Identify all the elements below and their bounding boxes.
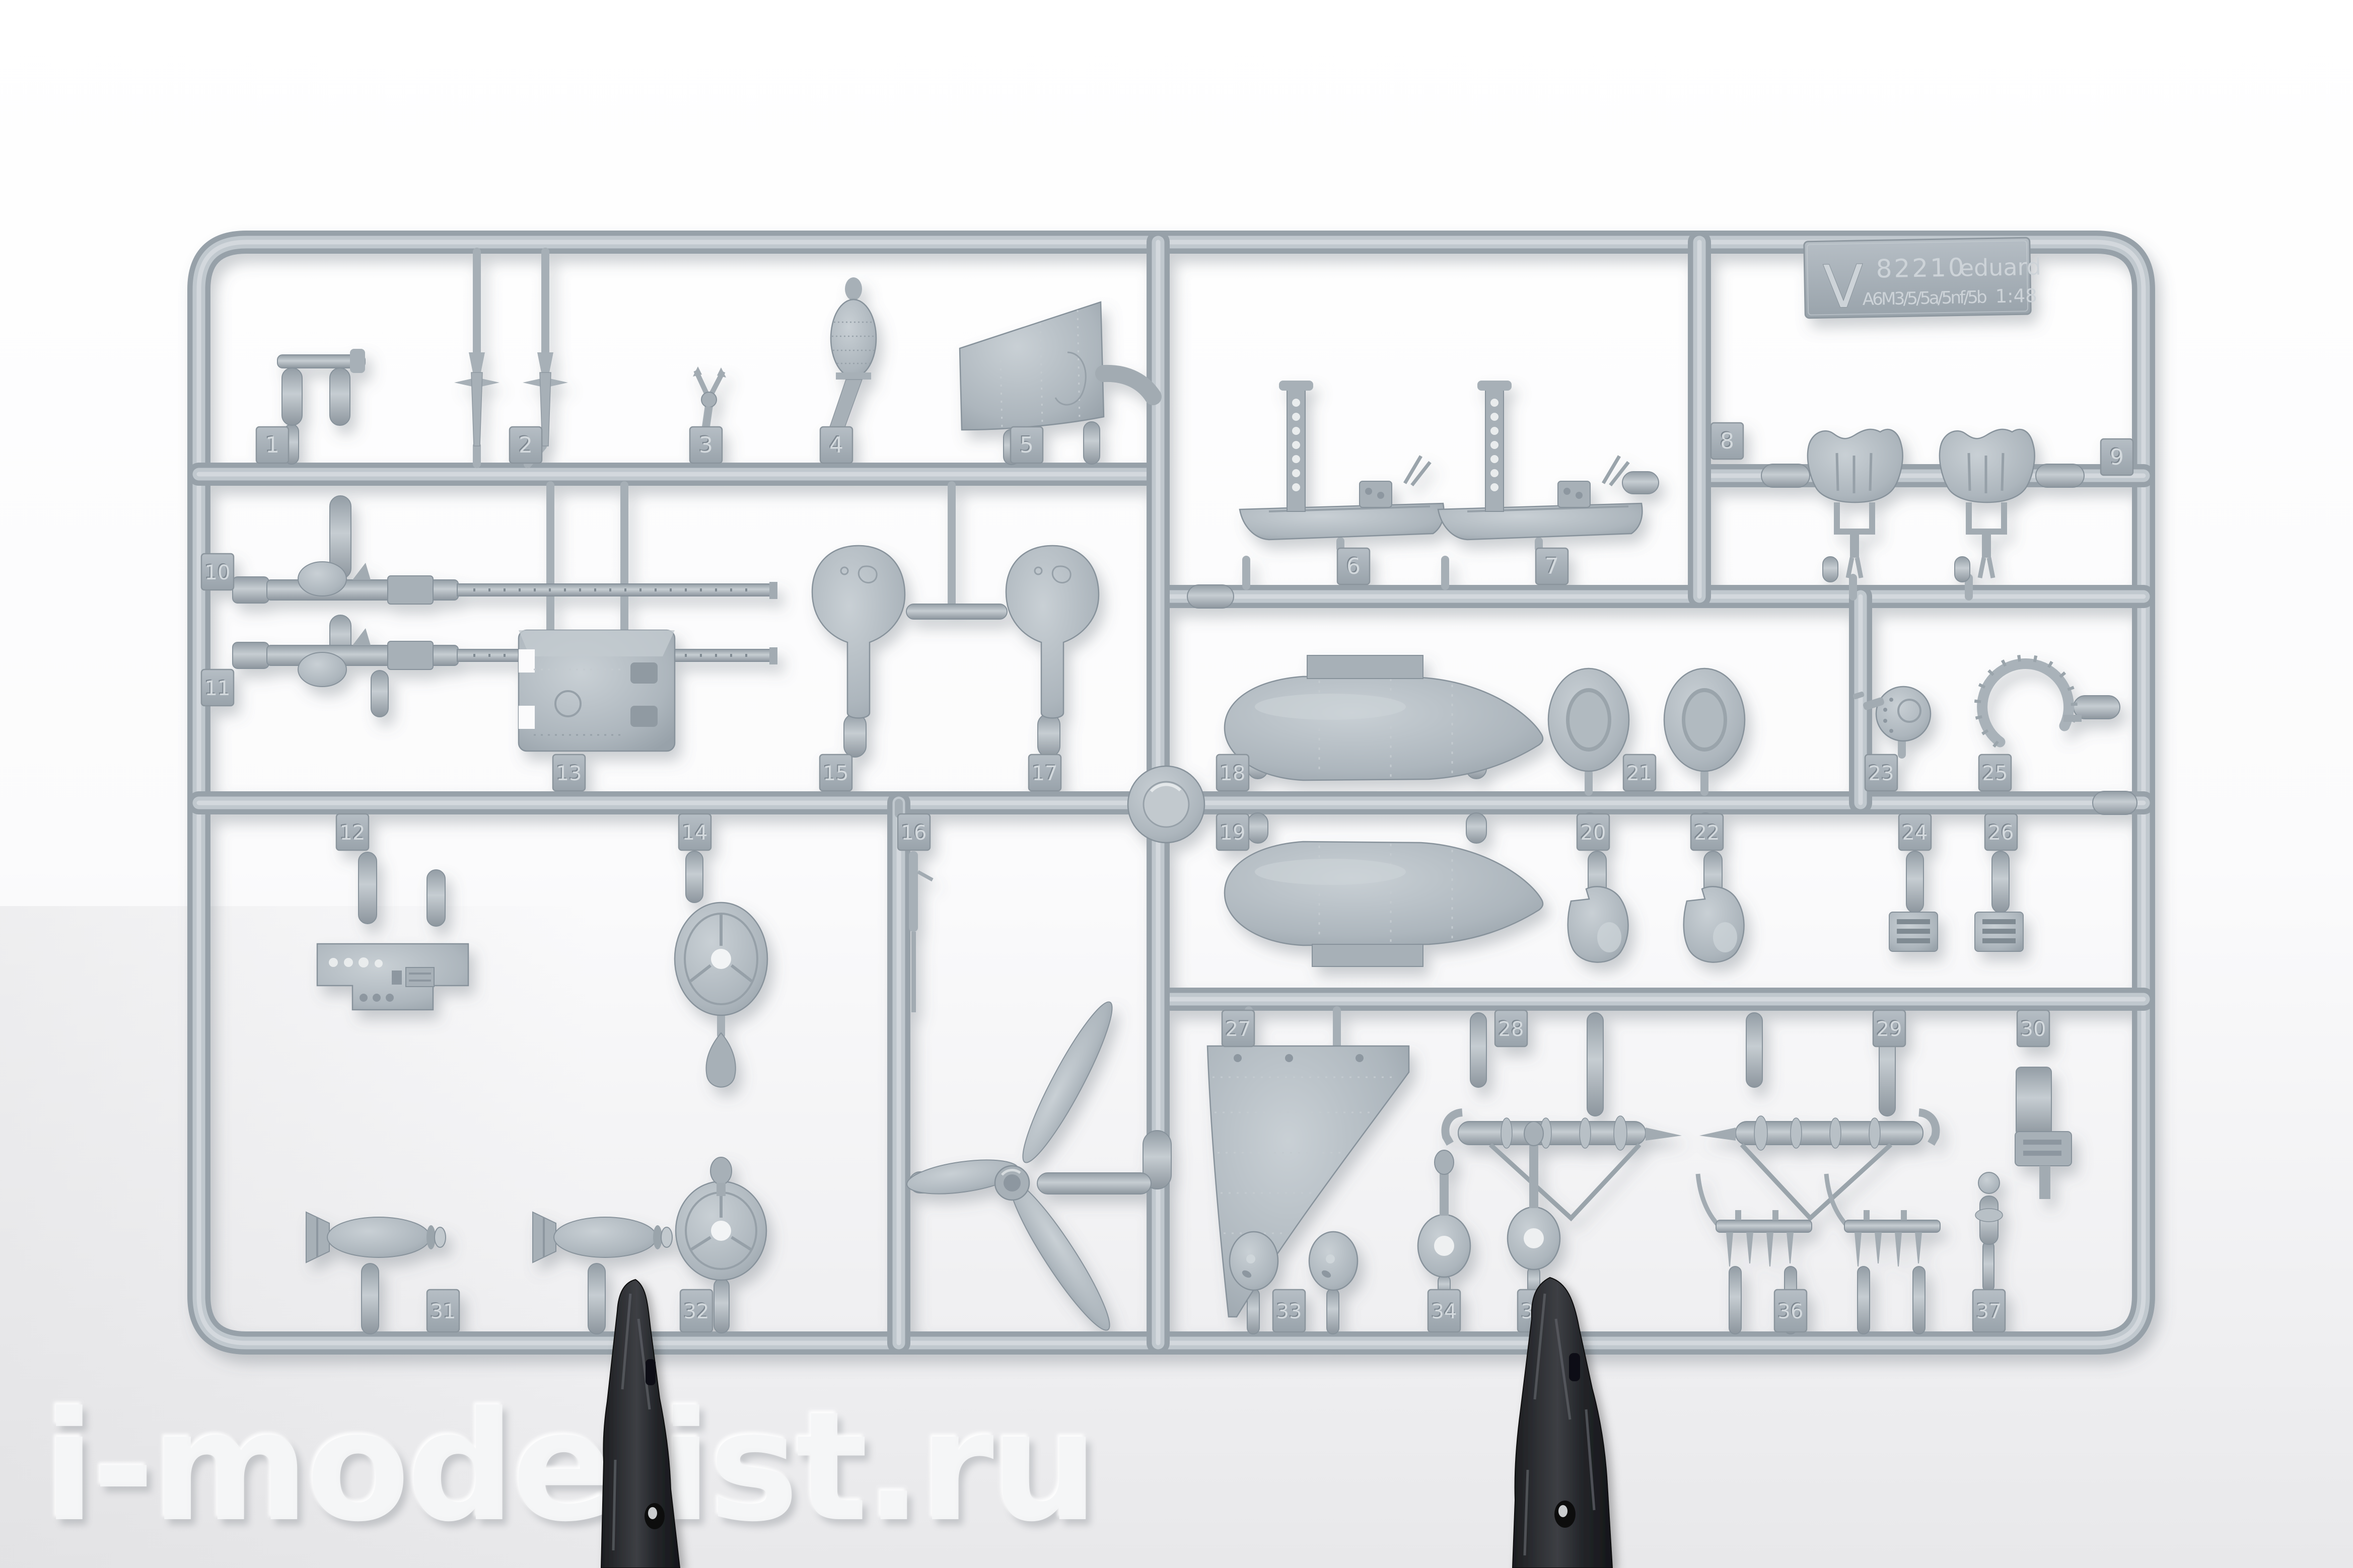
part-24-louver xyxy=(1889,912,1938,951)
label-brand: eduard xyxy=(1959,253,2041,282)
sprue-label-plate: V 82210 eduard A6M3/5/5a/5nf/5b 1:48 xyxy=(1804,238,2042,322)
part-tag-13: 1313 xyxy=(553,755,585,791)
part-32-knob xyxy=(710,1157,732,1184)
gate-stub xyxy=(1038,714,1060,757)
disc-hole xyxy=(711,949,731,969)
sprue-injection-hub xyxy=(1128,766,1204,843)
label-variant: A6M3/5/5a/5nf/5b xyxy=(1862,287,1987,310)
gate-stub xyxy=(359,852,377,924)
gate-stub xyxy=(427,870,445,926)
tag-number: 23 xyxy=(1869,762,1894,785)
tag-number: 17 xyxy=(1032,762,1058,785)
gate-stub xyxy=(1187,585,1234,608)
part-21-cowl-ring-a xyxy=(1548,668,1629,771)
tag-number: 16 xyxy=(901,822,927,845)
tag-number: 1 xyxy=(265,432,279,458)
tag-number: 22 xyxy=(1694,822,1720,845)
gate-stub xyxy=(2093,791,2137,814)
tag-number: 28 xyxy=(1499,1018,1524,1041)
label-sprue-letter: V xyxy=(1822,252,1864,322)
part-tag-22: 2222 xyxy=(1691,814,1723,850)
tag-number: 31 xyxy=(431,1300,456,1323)
disc-hole xyxy=(711,1221,731,1241)
gate-stub xyxy=(686,851,703,903)
paddle-connector-bar xyxy=(906,604,1007,619)
gate-stub xyxy=(362,1263,379,1334)
tag-number: 13 xyxy=(556,762,582,785)
part-tag-29: 2929 xyxy=(1873,1010,1905,1047)
part-tag-24: 2424 xyxy=(1899,814,1931,850)
part-tag-6: 66 xyxy=(1337,548,1370,584)
tag-number: 10 xyxy=(205,561,231,584)
part-tag-5: 55 xyxy=(1011,427,1043,463)
disc-hole xyxy=(1524,1228,1544,1248)
tag-number: 25 xyxy=(1982,762,2008,785)
tag-number: 21 xyxy=(1627,762,1653,785)
gate-stub xyxy=(1622,472,1659,494)
tag-number: 33 xyxy=(1276,1300,1302,1323)
disc-hole xyxy=(1434,1236,1454,1256)
label-kit-number: 82210 xyxy=(1876,253,1966,283)
part-tag-34: 3434 xyxy=(1428,1290,1460,1332)
gate-stub xyxy=(1858,1266,1870,1334)
part-tag-14: 1414 xyxy=(679,814,711,850)
part-tag-28: 2828 xyxy=(1495,1010,1527,1047)
tag-number: 19 xyxy=(1220,822,1246,845)
part-tag-32: 3232 xyxy=(680,1290,712,1332)
gate-stub xyxy=(1327,1289,1339,1334)
gate-stub xyxy=(588,1263,605,1334)
part-tag-3: 33 xyxy=(690,427,722,463)
gate-stub xyxy=(844,714,866,757)
watermark: i-modelist.ru i-modelist.ru i-modelist.r… xyxy=(41,1377,1100,1560)
part-tag-30: 3030 xyxy=(2017,1010,2049,1047)
part-tag-20: 2020 xyxy=(1577,814,1609,850)
tag-number: 37 xyxy=(1976,1300,2002,1323)
part-32-wheel-hub xyxy=(676,1181,766,1280)
tag-number: 24 xyxy=(1902,822,1928,845)
gate-stub xyxy=(1729,1266,1741,1334)
part-tag-9: 99 xyxy=(2101,439,2133,475)
part-tag-27: 2727 xyxy=(1222,1010,1254,1047)
part-32-knob-stem xyxy=(717,1183,726,1196)
tag-number: 27 xyxy=(1226,1018,1251,1041)
tag-number: 12 xyxy=(340,822,366,845)
sprue-photo: i-modelist.ru i-modelist.ru i-modelist.r… xyxy=(0,0,2353,1568)
gate-stub xyxy=(1913,1266,1925,1334)
tag-number: 5 xyxy=(1020,432,1034,458)
gate-stub xyxy=(1587,1013,1603,1116)
part-33-disc-a xyxy=(1230,1232,1278,1290)
part-13-gun-deck xyxy=(519,630,675,751)
tag-number: 29 xyxy=(1877,1018,1902,1041)
gate-stub xyxy=(1992,851,2009,913)
tag-number: 18 xyxy=(1220,762,1246,785)
part-33-disc-b xyxy=(1309,1232,1358,1290)
part-tag-23: 2323 xyxy=(1865,755,1897,791)
gate-stub xyxy=(1823,557,1838,582)
tag-number: 14 xyxy=(682,822,708,845)
tag-number: 20 xyxy=(1581,822,1606,845)
gate-stub xyxy=(1466,813,1486,843)
tag-number: 30 xyxy=(2021,1018,2046,1041)
part-tag-12: 1212 xyxy=(336,814,369,850)
part-18-pylon xyxy=(1307,655,1423,679)
disc-hub-dot xyxy=(1246,1254,1255,1263)
part-tag-37: 3737 xyxy=(1973,1290,2005,1332)
part-tag-1: 11 xyxy=(256,427,289,463)
disc-stem xyxy=(1529,1141,1538,1208)
part-14-wheel-hub xyxy=(675,903,767,1015)
gate-stub xyxy=(1983,1241,1994,1292)
part-tag-21: 2121 xyxy=(1623,755,1656,791)
gate-stub xyxy=(1248,813,1268,843)
disc-stem xyxy=(1440,1169,1449,1216)
part-tag-2: 22 xyxy=(510,427,542,463)
tag-number: 11 xyxy=(205,677,231,700)
part-tag-17: 1717 xyxy=(1029,755,1061,791)
gate-stub xyxy=(1037,1173,1151,1194)
tag-number: 6 xyxy=(1346,554,1361,579)
tag-number: 26 xyxy=(1988,822,2014,845)
part-tag-31: 3131 xyxy=(427,1290,459,1332)
tag-number: 36 xyxy=(1778,1300,1804,1323)
tag-number: 2 xyxy=(519,432,533,458)
part-tag-8: 88 xyxy=(1711,423,1743,459)
part-tag-15: 1515 xyxy=(820,755,852,791)
disc-knob xyxy=(1524,1122,1543,1146)
tag-number: 15 xyxy=(823,762,849,785)
part-19-pylon xyxy=(1312,944,1423,966)
part-tag-18: 1818 xyxy=(1217,755,1249,791)
part-tag-36: 3636 xyxy=(1774,1290,1807,1332)
part-tag-11: 1111 xyxy=(201,669,234,706)
gate-stub xyxy=(1746,1013,1762,1087)
disc-knob xyxy=(1435,1150,1454,1174)
label-scale: 1:48 xyxy=(1995,285,2037,307)
part-tag-19: 1919 xyxy=(1217,814,1249,850)
watermark-text: i-modelist.ru xyxy=(43,1379,1095,1555)
gate-stub xyxy=(371,670,388,717)
gate-stub xyxy=(2036,464,2084,487)
part-21-cowl-ring-b xyxy=(1664,668,1745,771)
gate-stub xyxy=(1906,851,1923,913)
part-tag-33: 3333 xyxy=(1273,1290,1305,1332)
tag-number: 9 xyxy=(2110,444,2124,470)
gate-stub xyxy=(1084,422,1100,464)
part-tag-16: 1616 xyxy=(898,814,930,850)
gate-stub xyxy=(1470,1013,1486,1087)
part-tag-26: 2626 xyxy=(1985,814,2017,850)
gate-stub xyxy=(1761,464,1810,487)
gate-stub xyxy=(714,1279,729,1333)
tag-number: 32 xyxy=(684,1300,709,1323)
tag-number: 4 xyxy=(829,432,843,458)
gate-stub xyxy=(1955,557,1970,582)
part-tag-7: 77 xyxy=(1536,548,1568,584)
tag-number: 34 xyxy=(1432,1300,1457,1323)
tag-number: 7 xyxy=(1545,554,1559,579)
part-26-louver xyxy=(1975,912,2023,951)
part-tag-10: 1010 xyxy=(201,554,234,590)
disc-hub-dot xyxy=(1326,1254,1335,1263)
part-37-fitting xyxy=(1975,1172,2003,1244)
tag-number: 8 xyxy=(1720,428,1734,454)
tag-number: 3 xyxy=(699,432,713,458)
part-tag-4: 44 xyxy=(820,427,852,463)
part-tag-25: 2525 xyxy=(1979,755,2011,791)
